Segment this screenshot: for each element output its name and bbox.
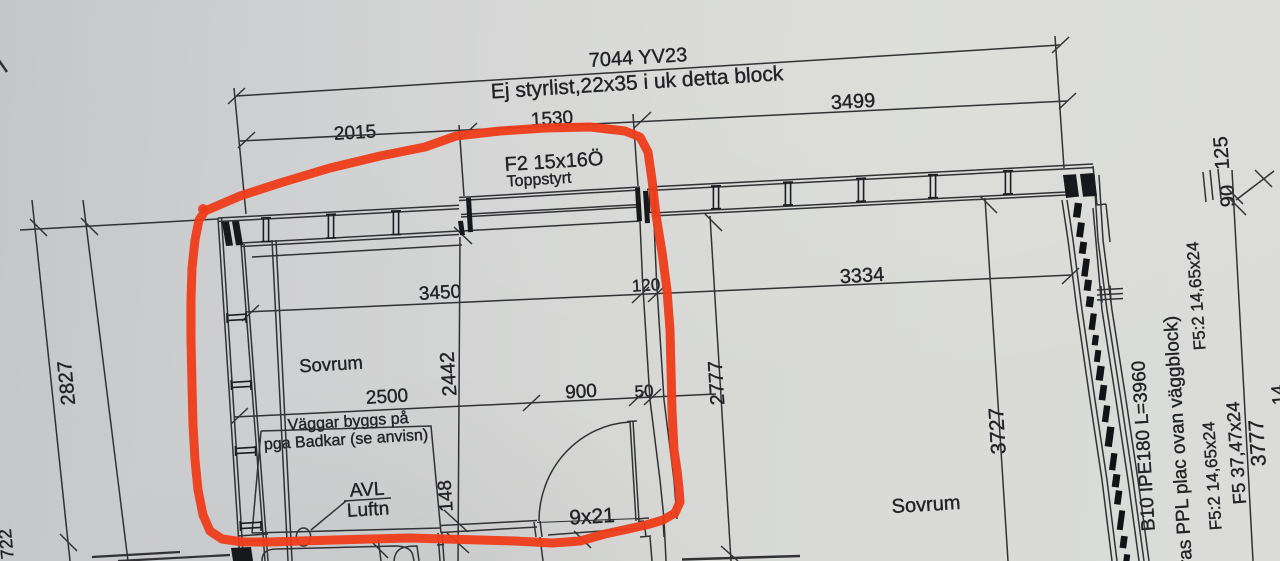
- svg-text:Sovrum: Sovrum: [891, 492, 961, 518]
- svg-text:nteras PPL plac ovan väggblock: nteras PPL plac ovan väggblock): [1161, 315, 1199, 561]
- svg-text:125: 125: [1210, 136, 1234, 171]
- svg-text:Luftn: Luftn: [346, 498, 389, 521]
- svg-text:F5:2 14,65x24: F5:2 14,65x24: [1199, 421, 1226, 531]
- svg-text:3450: 3450: [418, 281, 461, 304]
- svg-text:2500: 2500: [365, 385, 408, 408]
- svg-text:2777: 2777: [705, 360, 730, 406]
- svg-text:7044 YV23: 7044 YV23: [588, 44, 688, 72]
- svg-text:3777: 3777: [1245, 419, 1271, 467]
- svg-text:2827: 2827: [54, 360, 80, 406]
- svg-text:14: 14: [1268, 384, 1280, 405]
- svg-text:Sovrum: Sovrum: [299, 352, 364, 377]
- svg-text:9x21: 9x21: [569, 504, 616, 530]
- svg-text:F5:2 14,65x24: F5:2 14,65x24: [1183, 241, 1210, 351]
- svg-text:2442: 2442: [436, 351, 461, 397]
- svg-text:2015: 2015: [333, 121, 376, 144]
- svg-text:3727: 3727: [985, 407, 1011, 455]
- svg-text:722: 722: [0, 528, 18, 560]
- svg-text:Toppstyrt: Toppstyrt: [506, 170, 572, 191]
